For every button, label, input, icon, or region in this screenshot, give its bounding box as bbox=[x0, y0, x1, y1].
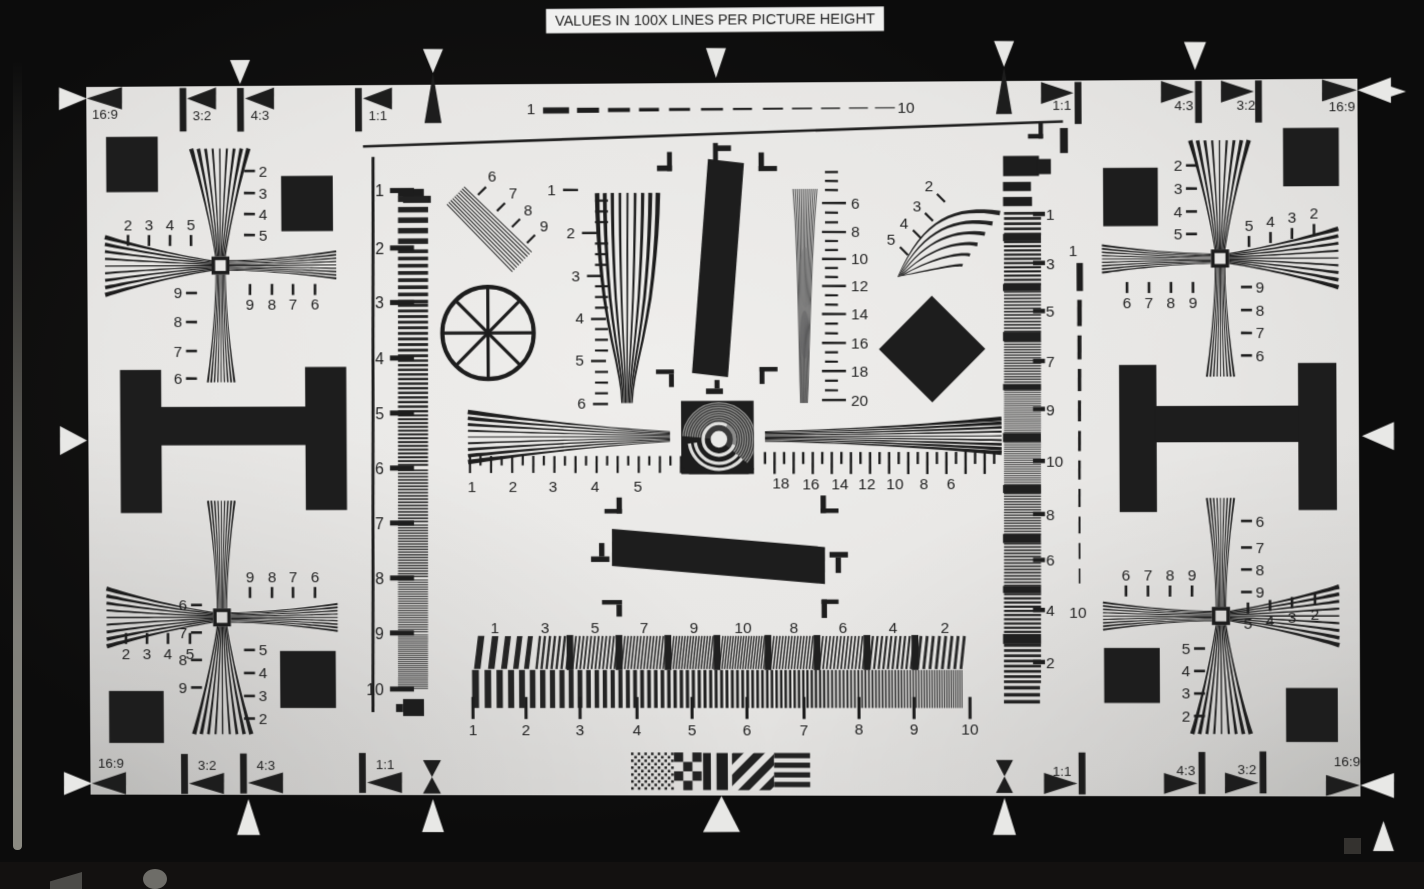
svg-text:4: 4 bbox=[900, 216, 909, 233]
svg-text:3: 3 bbox=[1288, 210, 1297, 227]
svg-text:7: 7 bbox=[174, 343, 183, 360]
svg-text:4: 4 bbox=[575, 311, 584, 328]
svg-text:4: 4 bbox=[633, 722, 642, 739]
svg-text:5: 5 bbox=[887, 232, 896, 249]
svg-text:1:1: 1:1 bbox=[376, 757, 395, 772]
svg-text:9: 9 bbox=[246, 569, 255, 586]
svg-text:4: 4 bbox=[375, 351, 384, 368]
svg-text:3: 3 bbox=[549, 479, 558, 496]
svg-text:9: 9 bbox=[1256, 279, 1265, 296]
svg-text:1: 1 bbox=[468, 479, 477, 496]
svg-text:9: 9 bbox=[246, 297, 255, 314]
svg-text:18: 18 bbox=[851, 363, 868, 380]
svg-text:2: 2 bbox=[566, 225, 575, 242]
svg-text:16:9: 16:9 bbox=[92, 107, 118, 122]
svg-text:9: 9 bbox=[1188, 567, 1197, 584]
svg-text:2: 2 bbox=[122, 646, 131, 663]
svg-text:2: 2 bbox=[1310, 206, 1319, 223]
svg-text:2: 2 bbox=[925, 178, 934, 195]
svg-text:12: 12 bbox=[851, 278, 868, 295]
svg-text:4:3: 4:3 bbox=[1174, 98, 1193, 113]
svg-text:10: 10 bbox=[1046, 454, 1063, 471]
svg-text:10: 10 bbox=[366, 682, 384, 699]
svg-text:5: 5 bbox=[259, 642, 268, 659]
svg-text:7: 7 bbox=[289, 569, 298, 586]
svg-text:3: 3 bbox=[1182, 686, 1191, 703]
svg-text:3: 3 bbox=[1046, 256, 1055, 273]
svg-text:8: 8 bbox=[268, 297, 277, 314]
svg-text:2: 2 bbox=[259, 163, 268, 180]
svg-text:7: 7 bbox=[1145, 295, 1154, 312]
svg-text:1:1: 1:1 bbox=[1052, 98, 1071, 113]
svg-text:7: 7 bbox=[289, 297, 298, 314]
svg-text:5: 5 bbox=[187, 217, 196, 234]
svg-text:9: 9 bbox=[1046, 402, 1055, 419]
svg-text:2: 2 bbox=[509, 479, 518, 496]
svg-text:3: 3 bbox=[375, 295, 384, 312]
svg-text:4: 4 bbox=[166, 217, 175, 234]
svg-text:3: 3 bbox=[143, 646, 152, 663]
svg-text:1:1: 1:1 bbox=[369, 108, 388, 123]
svg-text:9: 9 bbox=[540, 218, 549, 235]
svg-text:9: 9 bbox=[174, 285, 183, 302]
svg-text:4: 4 bbox=[259, 665, 268, 682]
svg-text:2: 2 bbox=[1174, 158, 1183, 175]
svg-text:4:3: 4:3 bbox=[257, 757, 276, 772]
svg-text:9: 9 bbox=[1256, 584, 1265, 601]
svg-text:8: 8 bbox=[790, 620, 799, 637]
svg-text:5: 5 bbox=[186, 646, 195, 663]
svg-text:16:9: 16:9 bbox=[1329, 99, 1356, 114]
svg-text:3:2: 3:2 bbox=[1236, 98, 1255, 113]
svg-text:2: 2 bbox=[1182, 708, 1191, 725]
svg-text:7: 7 bbox=[1144, 567, 1153, 584]
svg-text:5: 5 bbox=[1244, 615, 1253, 632]
svg-text:16: 16 bbox=[802, 476, 819, 493]
svg-text:4: 4 bbox=[164, 646, 173, 663]
svg-text:2: 2 bbox=[124, 217, 133, 234]
svg-text:6: 6 bbox=[1046, 553, 1055, 570]
svg-text:18: 18 bbox=[772, 476, 789, 493]
svg-text:2: 2 bbox=[1046, 655, 1055, 672]
svg-text:5: 5 bbox=[259, 227, 268, 244]
svg-text:3: 3 bbox=[576, 722, 585, 739]
svg-text:16:9: 16:9 bbox=[98, 756, 124, 771]
svg-text:14: 14 bbox=[831, 476, 849, 493]
svg-text:4: 4 bbox=[591, 479, 600, 496]
svg-text:5: 5 bbox=[375, 406, 384, 423]
svg-text:4: 4 bbox=[889, 620, 898, 637]
svg-text:6: 6 bbox=[851, 195, 860, 212]
svg-text:4: 4 bbox=[1182, 663, 1191, 680]
svg-text:10: 10 bbox=[851, 251, 868, 268]
svg-text:7: 7 bbox=[800, 722, 809, 739]
svg-text:20: 20 bbox=[851, 392, 868, 409]
svg-text:3:2: 3:2 bbox=[1237, 762, 1256, 777]
svg-text:6: 6 bbox=[947, 476, 956, 493]
svg-text:3: 3 bbox=[259, 688, 268, 705]
svg-text:8: 8 bbox=[1166, 567, 1175, 584]
svg-text:4: 4 bbox=[1174, 204, 1183, 221]
svg-text:8: 8 bbox=[524, 202, 533, 219]
svg-text:8: 8 bbox=[1256, 562, 1265, 579]
svg-text:3: 3 bbox=[571, 268, 580, 285]
svg-text:7: 7 bbox=[640, 620, 649, 637]
svg-text:5: 5 bbox=[1182, 641, 1191, 658]
svg-text:8: 8 bbox=[920, 476, 929, 493]
svg-text:7: 7 bbox=[1046, 354, 1055, 371]
svg-text:5: 5 bbox=[591, 620, 600, 637]
svg-text:5: 5 bbox=[1245, 218, 1254, 235]
svg-text:8: 8 bbox=[268, 569, 277, 586]
svg-text:1: 1 bbox=[1069, 243, 1078, 260]
svg-text:5: 5 bbox=[688, 722, 697, 739]
svg-text:8: 8 bbox=[174, 314, 183, 331]
svg-text:5: 5 bbox=[1174, 226, 1183, 243]
svg-text:2: 2 bbox=[522, 722, 531, 739]
svg-text:8: 8 bbox=[1167, 295, 1176, 312]
svg-text:1:1: 1:1 bbox=[1053, 764, 1072, 779]
svg-text:VALUES IN 100X LINES PER PICTU: VALUES IN 100X LINES PER PICTURE HEIGHT bbox=[555, 12, 875, 31]
svg-text:3:2: 3:2 bbox=[198, 758, 217, 773]
svg-text:8: 8 bbox=[375, 571, 384, 588]
svg-text:8: 8 bbox=[855, 722, 864, 739]
svg-text:6: 6 bbox=[743, 722, 752, 739]
svg-text:14: 14 bbox=[851, 306, 869, 323]
svg-text:2: 2 bbox=[259, 711, 268, 728]
svg-text:7: 7 bbox=[375, 516, 384, 533]
svg-text:1: 1 bbox=[547, 182, 556, 199]
svg-text:5: 5 bbox=[634, 479, 643, 496]
svg-text:6: 6 bbox=[1122, 567, 1131, 584]
svg-text:4:3: 4:3 bbox=[251, 108, 270, 123]
svg-text:3: 3 bbox=[1174, 181, 1183, 198]
svg-text:4: 4 bbox=[1266, 214, 1275, 231]
svg-text:5: 5 bbox=[1046, 304, 1055, 321]
svg-text:4:3: 4:3 bbox=[1177, 763, 1196, 778]
svg-text:3: 3 bbox=[1288, 610, 1297, 627]
svg-text:7: 7 bbox=[1256, 325, 1265, 342]
svg-text:2: 2 bbox=[1311, 607, 1320, 624]
svg-text:3: 3 bbox=[145, 217, 154, 234]
svg-text:16: 16 bbox=[851, 335, 868, 352]
svg-text:9: 9 bbox=[1189, 295, 1198, 312]
svg-text:4: 4 bbox=[259, 206, 268, 223]
svg-text:10: 10 bbox=[886, 476, 903, 493]
svg-text:6: 6 bbox=[1123, 295, 1132, 312]
svg-text:6: 6 bbox=[1256, 513, 1265, 530]
svg-text:8: 8 bbox=[851, 224, 860, 241]
svg-text:2: 2 bbox=[375, 241, 384, 258]
svg-text:6: 6 bbox=[179, 597, 188, 614]
svg-text:6: 6 bbox=[577, 396, 586, 413]
svg-text:6: 6 bbox=[488, 169, 497, 186]
svg-text:8: 8 bbox=[1046, 507, 1055, 524]
svg-text:4: 4 bbox=[1046, 603, 1055, 620]
svg-text:6: 6 bbox=[311, 569, 320, 586]
svg-text:10: 10 bbox=[734, 620, 751, 637]
svg-text:9: 9 bbox=[179, 680, 188, 697]
svg-text:7: 7 bbox=[179, 625, 188, 642]
svg-text:3: 3 bbox=[259, 185, 268, 202]
svg-text:6: 6 bbox=[839, 620, 848, 637]
svg-text:6: 6 bbox=[1256, 348, 1265, 365]
svg-text:1: 1 bbox=[491, 620, 500, 637]
svg-text:9: 9 bbox=[910, 722, 919, 739]
svg-text:2: 2 bbox=[941, 620, 950, 637]
svg-text:6: 6 bbox=[174, 371, 183, 388]
svg-text:8: 8 bbox=[1256, 302, 1265, 319]
svg-text:5: 5 bbox=[575, 353, 584, 370]
svg-text:3: 3 bbox=[541, 620, 550, 637]
svg-text:1: 1 bbox=[527, 101, 536, 118]
svg-text:10: 10 bbox=[961, 722, 978, 739]
svg-text:7: 7 bbox=[1256, 540, 1265, 557]
svg-text:1: 1 bbox=[1046, 207, 1055, 224]
svg-text:1: 1 bbox=[375, 183, 384, 200]
svg-text:1: 1 bbox=[469, 722, 478, 739]
svg-text:7: 7 bbox=[509, 186, 518, 203]
svg-text:16:9: 16:9 bbox=[1334, 754, 1361, 769]
svg-text:9: 9 bbox=[690, 620, 699, 637]
svg-text:10: 10 bbox=[1069, 605, 1086, 622]
svg-text:6: 6 bbox=[375, 461, 384, 478]
svg-text:3: 3 bbox=[913, 199, 922, 216]
svg-text:9: 9 bbox=[375, 626, 384, 643]
svg-text:12: 12 bbox=[858, 476, 875, 493]
svg-text:10: 10 bbox=[897, 100, 914, 117]
svg-text:6: 6 bbox=[311, 297, 320, 314]
svg-text:4: 4 bbox=[1266, 613, 1275, 630]
svg-text:3:2: 3:2 bbox=[193, 108, 212, 123]
